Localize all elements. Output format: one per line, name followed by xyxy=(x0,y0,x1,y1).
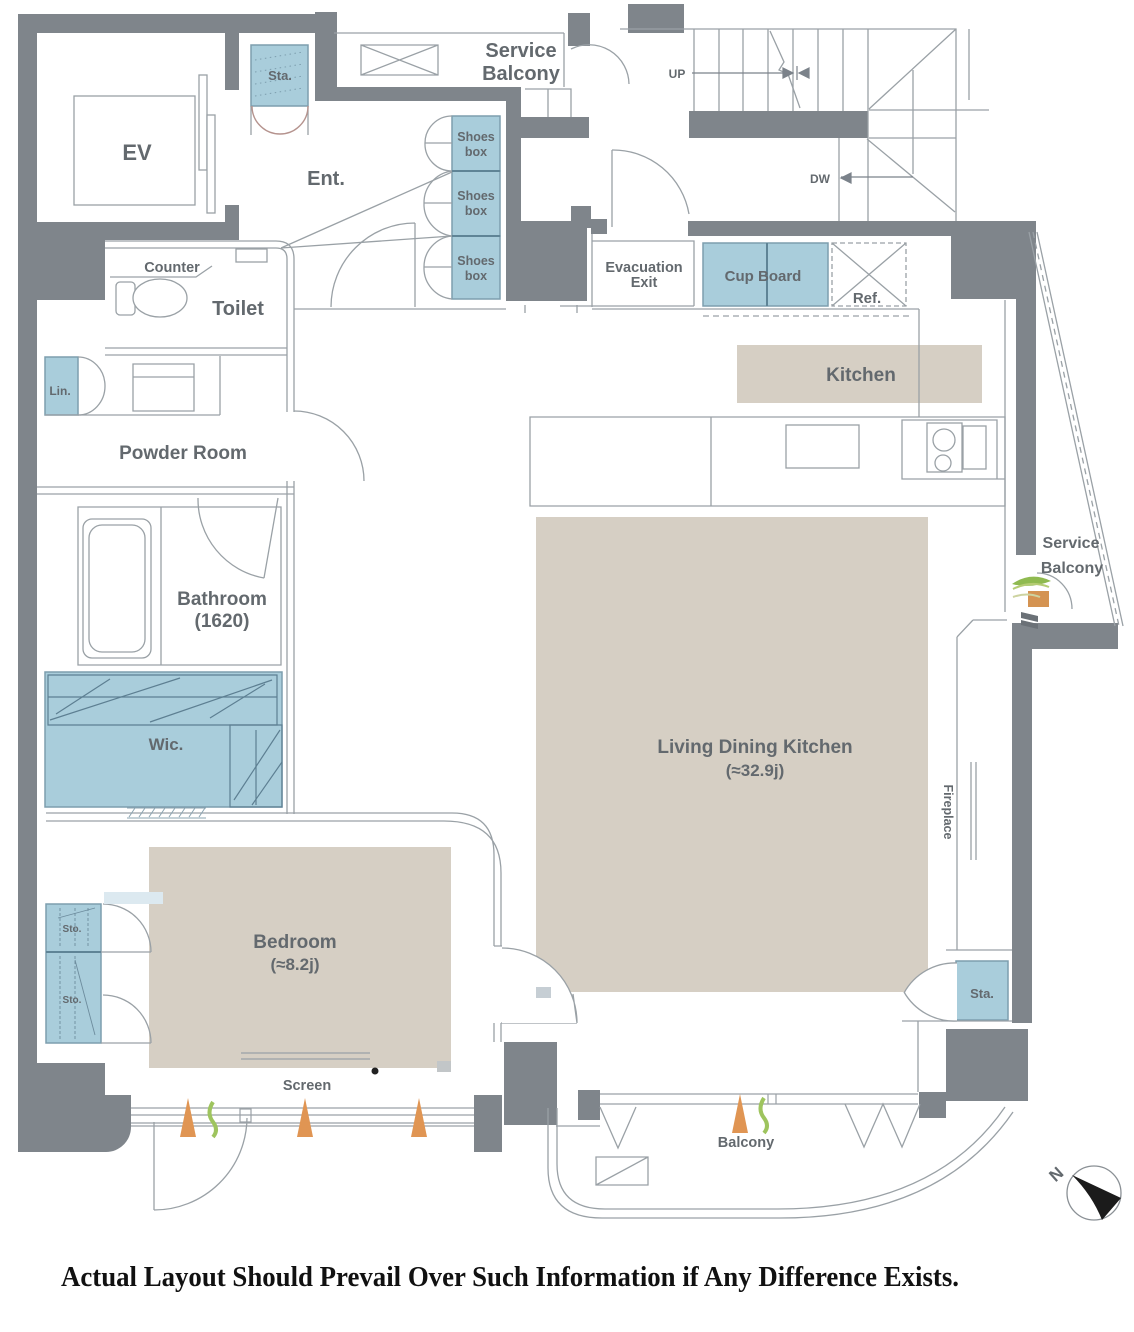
svg-text:Actual Layout Should Prevail O: Actual Layout Should Prevail Over Such I… xyxy=(61,1262,959,1293)
svg-text:Ref.: Ref. xyxy=(853,290,881,307)
svg-text:Counter: Counter xyxy=(144,260,200,276)
svg-text:Cup Board: Cup Board xyxy=(725,268,802,285)
svg-text:Service: Service xyxy=(1043,535,1100,552)
svg-text:box: box xyxy=(465,145,487,159)
svg-text:DW: DW xyxy=(810,172,831,186)
svg-text:(1620): (1620) xyxy=(195,611,250,632)
svg-text:box: box xyxy=(465,269,487,283)
svg-text:Bathroom: Bathroom xyxy=(177,589,267,610)
svg-text:Shoes: Shoes xyxy=(457,254,495,268)
svg-text:Sta.: Sta. xyxy=(970,986,994,1001)
svg-text:Sto.: Sto. xyxy=(63,995,82,1006)
svg-text:Lin.: Lin. xyxy=(49,384,70,398)
svg-text:Kitchen: Kitchen xyxy=(826,365,896,386)
svg-text:Balcony: Balcony xyxy=(1041,560,1103,577)
svg-text:(≈8.2j): (≈8.2j) xyxy=(270,955,319,974)
svg-text:Ent.: Ent. xyxy=(307,168,345,190)
svg-text:Living Dining Kitchen: Living Dining Kitchen xyxy=(657,737,852,758)
svg-text:Powder Room: Powder Room xyxy=(119,443,247,464)
svg-text:Sta.: Sta. xyxy=(268,68,292,83)
svg-text:EV: EV xyxy=(122,140,152,165)
svg-text:Fireplace: Fireplace xyxy=(941,785,955,840)
svg-text:Sto.: Sto. xyxy=(63,924,82,935)
svg-text:Wic.: Wic. xyxy=(149,735,184,754)
svg-text:Shoes: Shoes xyxy=(457,130,495,144)
svg-text:Balcony: Balcony xyxy=(718,1135,774,1151)
svg-text:Service: Service xyxy=(485,40,556,62)
svg-text:Screen: Screen xyxy=(283,1078,331,1094)
svg-text:Shoes: Shoes xyxy=(457,189,495,203)
svg-text:Balcony: Balcony xyxy=(482,63,561,85)
svg-text:Bedroom: Bedroom xyxy=(253,932,336,953)
svg-text:box: box xyxy=(465,204,487,218)
svg-text:(≈32.9j): (≈32.9j) xyxy=(726,761,784,780)
svg-text:UP: UP xyxy=(669,67,686,81)
svg-text:Exit: Exit xyxy=(631,275,658,291)
svg-text:Evacuation: Evacuation xyxy=(605,260,682,276)
svg-text:Toilet: Toilet xyxy=(212,298,264,320)
